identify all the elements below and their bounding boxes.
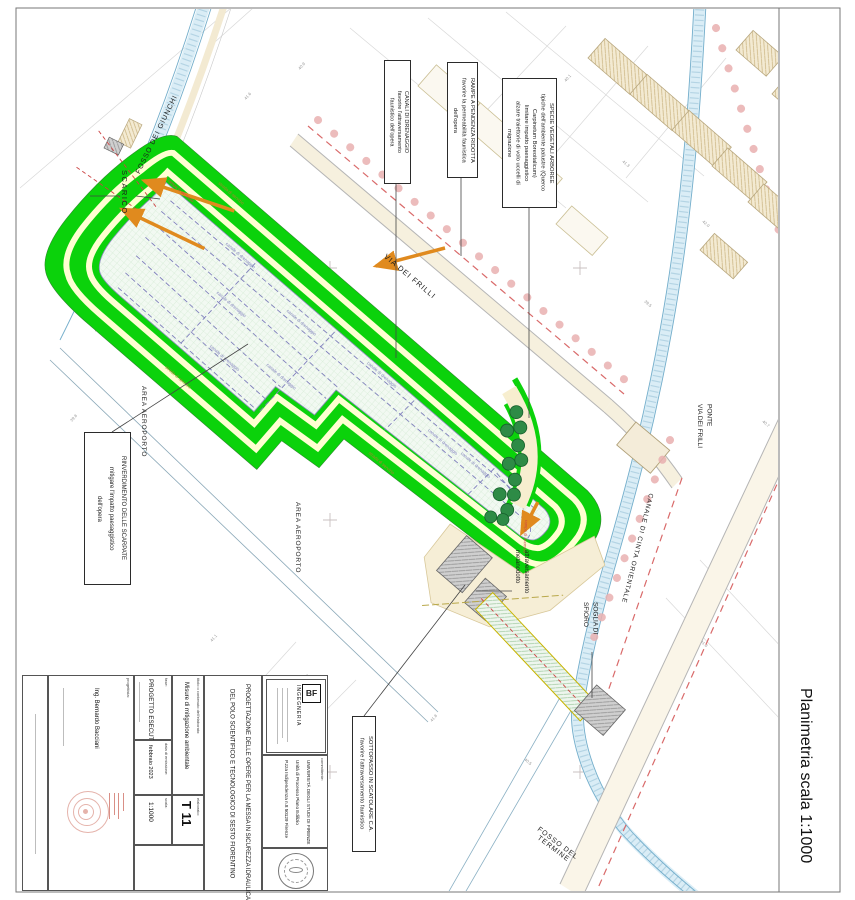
tb-date-cell: data di emissione: febbraio 2023 <box>134 740 172 795</box>
project-title: PROGETTAZIONE DELLE OPERE PER LA MESSA I… <box>223 684 254 884</box>
rev-microtext <box>139 682 140 722</box>
tb-phase-cell: fase: PROGETTO ESECUTIVO <box>134 675 172 740</box>
callout-specie-vegetali: SPECIE VEGETALI ARBOREE tipiche dell'amb… <box>502 78 557 208</box>
designer-microtext <box>63 688 64 746</box>
sheet-code-label: elaborato: <box>196 798 201 816</box>
callout-rampe: RAMPE A PENDENZA RIDOTTA favorire la per… <box>447 62 478 178</box>
client-label: committente: <box>320 758 325 781</box>
tb-scale-cell: scala: 1:1000 <box>134 795 172 845</box>
label-attraversamento-metanodotto: attraversamento metanodotto <box>512 550 530 593</box>
sheet-title: Planimetria scala 1:1000 <box>796 688 814 863</box>
designer-label: progettista: <box>126 678 131 698</box>
callout-rinverdimento: RINVERDIMENTO DELLE SCARPATE mitigare l'… <box>84 432 131 585</box>
phase-label: fase: <box>164 678 169 687</box>
tb-empty-cell <box>134 845 204 891</box>
signature-line <box>109 793 110 819</box>
signature-line <box>118 793 119 819</box>
disclaimer-microtext <box>35 714 36 854</box>
label-area-aeroporto-1: AREA AEROPORTO <box>140 386 147 457</box>
tb-disclaimer-cell <box>22 675 48 891</box>
content-value: Misure di mitigazione ambientale <box>183 682 189 769</box>
sheet-code: T 11 <box>179 801 194 826</box>
tb-client-cell: committente: UNIVERSITÀ DEGLI STUDI DI F… <box>262 755 328 848</box>
label-ponte-via-dei-frilli: PONTE VIA DEI FRILLI <box>694 404 714 448</box>
logo-name: INGEGNERIA <box>295 685 301 726</box>
logo-microtext <box>287 688 288 742</box>
content-label: titolo o contenuto dell'elaborato: <box>196 678 201 734</box>
designer-name: Ing. Bernardo Bacciani <box>93 688 99 749</box>
date-label: data di emissione: <box>164 743 169 775</box>
tb-logo-cell: BF INGEGNERIA <box>262 675 328 755</box>
drawing-sheet: { "sheet": { "frame_title": "Planimetria… <box>0 0 855 900</box>
red-stamp <box>67 791 109 833</box>
date-value: febbraio 2023 <box>147 745 153 779</box>
tb-sheet-code-cell: elaborato: T 11 <box>172 795 204 845</box>
round-stamp <box>278 853 314 889</box>
logo-microtext <box>277 688 278 744</box>
label-scarico: SCARICO <box>120 170 129 215</box>
client-name: UNIVERSITÀ DEGLI STUDI DI FIRENZE Unità … <box>281 760 314 844</box>
label-area-aeroporto-2: AREA AEROPORTO <box>294 502 301 573</box>
signature-line <box>114 793 115 815</box>
label-soglia-di-sfioro: SOGLIA DI SFIORO <box>580 602 600 634</box>
tb-stamp-cell <box>262 848 328 891</box>
callout-sottopasso: SOTTOPASSO IN SCATOLARE C.A. favorire l'… <box>352 716 376 852</box>
logo-bf: BF <box>302 684 321 703</box>
scale-value: 1:1000 <box>147 802 154 822</box>
tb-designer-cell: progettista: Ing. Bernardo Bacciani <box>48 675 134 891</box>
tb-project-title-cell: PROGETTAZIONE DELLE OPERE PER LA MESSA I… <box>204 675 262 891</box>
signature-line <box>123 793 124 811</box>
scale-label: scala: <box>164 798 169 808</box>
tb-content-cell: titolo o contenuto dell'elaborato: Misur… <box>172 675 204 795</box>
logo-microtext <box>282 688 283 738</box>
callout-canali-drenaggio: CANALI DI DRENAGGIO favorire l'attravers… <box>384 60 411 184</box>
